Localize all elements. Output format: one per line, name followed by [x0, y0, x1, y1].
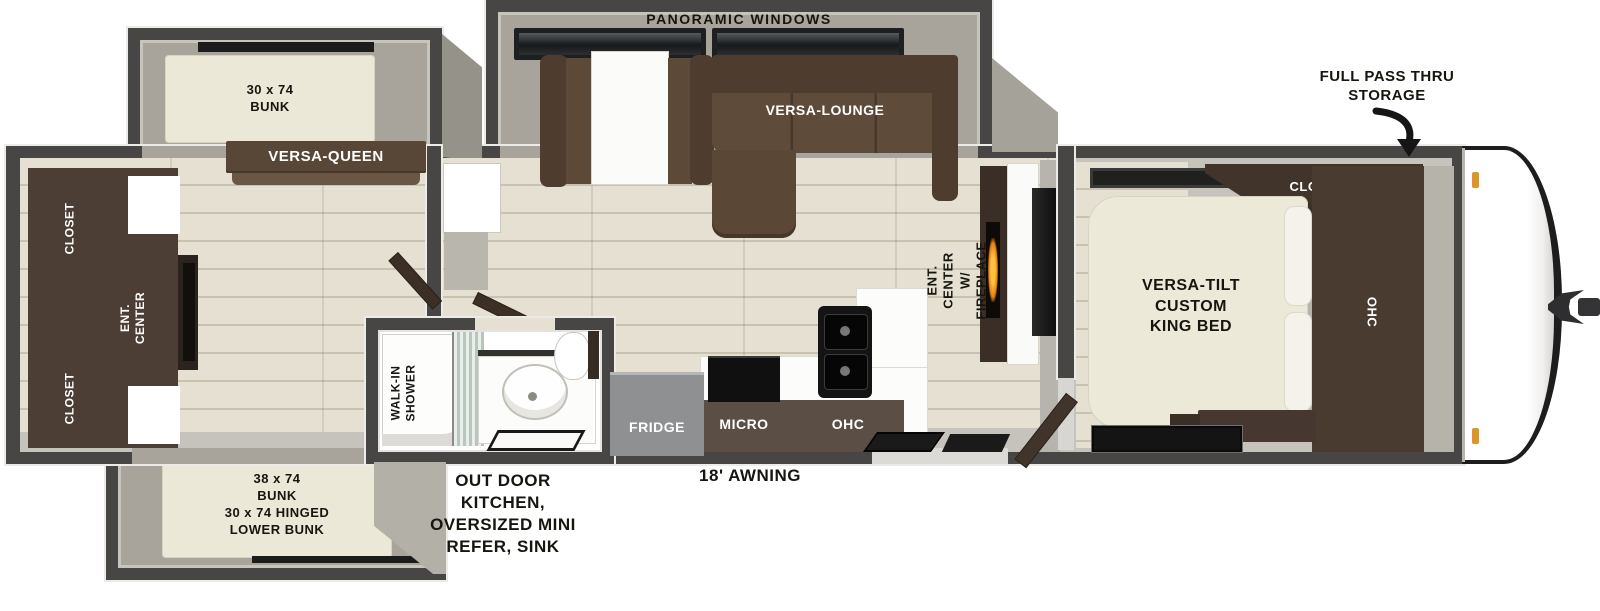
entry-mat-left	[863, 432, 945, 452]
versa-queen-label: VERSA-QUEEN	[226, 141, 426, 173]
toilet-tank	[588, 331, 599, 379]
sofa-chaise	[712, 150, 796, 238]
king-bed-label: VERSA-TILT CUSTOM KING BED	[1096, 252, 1286, 362]
stove	[818, 306, 872, 398]
bath-mat	[486, 430, 585, 451]
king-floor-mat	[1092, 426, 1242, 452]
ohc-bedroom-label: OHC	[1356, 280, 1386, 344]
upper-bunk-label: 30 x 74 BUNK	[165, 62, 375, 136]
bathroom-door-gap	[475, 318, 555, 330]
clearance-light-top	[1472, 172, 1479, 188]
lower-bunk-label: 38 x 74 BUNK 30 x 74 HINGED LOWER BUNK	[162, 455, 392, 555]
rear-tv	[178, 255, 198, 370]
king-pillow-bottom	[1284, 312, 1312, 412]
closet-rear-bottom-label: CLOSET	[55, 348, 85, 448]
versa-queen-cushion	[232, 173, 420, 185]
ent-center-fireplace-label: ENT. CENTER W/ FIREPLACE	[934, 200, 980, 360]
king-tv	[1032, 188, 1056, 336]
hall-cabinet	[444, 164, 500, 232]
lounge-mid-arm	[690, 55, 714, 185]
hitch-arm	[1578, 298, 1600, 316]
fridge	[610, 372, 704, 456]
awning-label: 18' AWNING	[676, 464, 824, 488]
floorplan-canvas: 30 x 74 BUNK PANORAMIC WINDOWS 38 x 74 B…	[0, 0, 1600, 611]
storage-arrow-icon	[1368, 106, 1424, 158]
sink-drain	[528, 392, 537, 401]
lounge-left-back	[566, 58, 592, 184]
wall-living-king	[1058, 146, 1074, 378]
sofa-back	[712, 55, 958, 95]
walk-in-shower-label: WALK-IN SHOWER	[386, 340, 420, 446]
slide-wedge-panoramic	[992, 58, 1058, 152]
micro-label: MICRO	[708, 410, 780, 438]
full-pass-thru-label: FULL PASS THRU STORAGE	[1298, 64, 1476, 108]
hall-counter	[444, 232, 488, 290]
lounge-mid-back	[668, 58, 692, 184]
entry-mat-right	[942, 434, 1010, 452]
wardrobe-opening-top	[128, 176, 180, 234]
microwave	[708, 356, 780, 402]
lounge-table	[592, 52, 668, 184]
front-cap-body	[1462, 150, 1554, 460]
outdoor-kitchen-label: OUT DOOR KITCHEN, OVERSIZED MINI REFER, …	[408, 464, 598, 564]
front-cap-seam	[1462, 148, 1465, 462]
king-wall-face	[1424, 166, 1454, 452]
versa-lounge-label: VERSA-LOUNGE	[758, 100, 892, 120]
wardrobe-opening-bottom	[128, 386, 180, 444]
window-glass	[717, 33, 899, 55]
panoramic-windows-label: PANORAMIC WINDOWS	[498, 11, 980, 27]
toilet-bowl	[554, 332, 590, 380]
fridge-label: FRIDGE	[610, 415, 704, 439]
lounge-left-arm	[540, 55, 568, 187]
clearance-light-bottom	[1472, 428, 1479, 444]
burner-knob-bottom	[840, 366, 850, 376]
rear-tv-screen	[183, 263, 195, 361]
slide-wedge-upper	[442, 34, 482, 162]
burner-knob-top	[840, 326, 850, 336]
upper-bunk-window	[198, 42, 374, 52]
closet-rear-top-label: CLOSET	[55, 178, 85, 278]
sofa-right-arm	[932, 55, 958, 201]
king-pillow-top	[1284, 206, 1312, 306]
ent-center-rear-label: ENT. CENTER	[118, 255, 148, 380]
